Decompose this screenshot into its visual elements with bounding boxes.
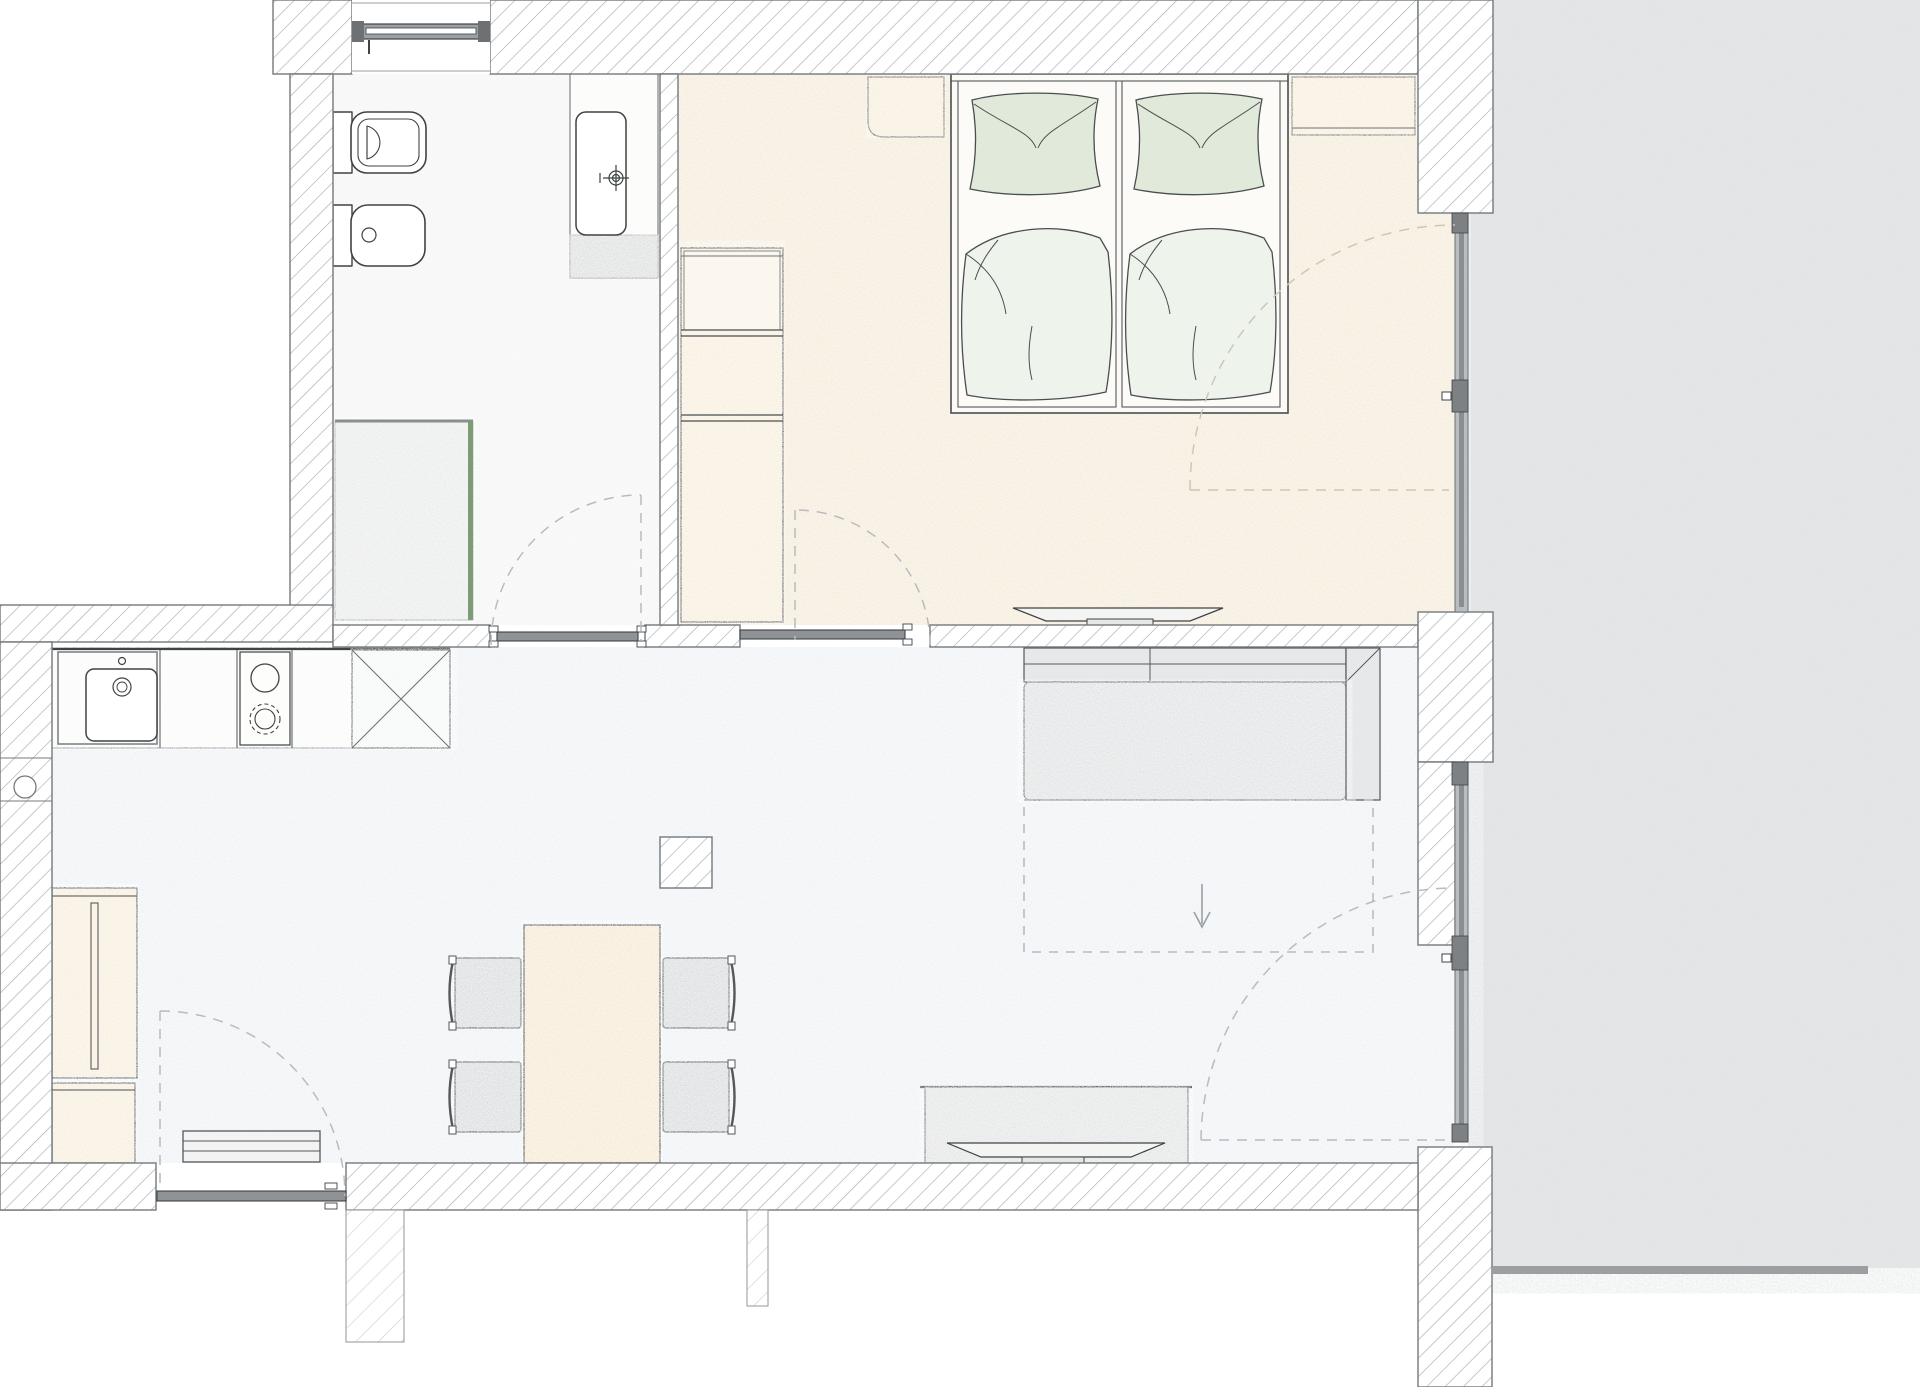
sink-faucet-icon <box>119 658 126 665</box>
wall-mid-a <box>333 625 490 647</box>
wall-bottom-b <box>346 1163 1418 1210</box>
wall-left <box>0 642 52 1210</box>
wall-right-strip <box>1418 762 1455 945</box>
sofa-seat <box>1024 682 1346 800</box>
fridge-handle <box>91 903 98 1069</box>
double-bed <box>951 74 1288 413</box>
kitchen-sink <box>86 658 157 742</box>
pillow-left <box>970 93 1100 195</box>
wall-column-circle <box>14 776 36 798</box>
wall-mid-c <box>930 625 1418 647</box>
wall-bathroom-right <box>660 74 678 625</box>
wall-stub-a <box>346 1210 404 1342</box>
sideboard <box>920 1087 1192 1163</box>
column <box>660 837 712 888</box>
chair <box>449 956 521 1030</box>
nightstand-right <box>1292 77 1415 135</box>
pillow-right <box>1134 93 1264 195</box>
radiator <box>183 1131 320 1162</box>
toilet <box>333 112 426 173</box>
wall-mid-b <box>645 625 740 647</box>
nightstand-left <box>868 77 944 137</box>
bidet <box>333 205 425 266</box>
wall-top-main <box>490 0 1418 74</box>
tall-fridge-unit <box>52 888 137 1078</box>
bathroom-window <box>352 0 490 74</box>
door-handle <box>1442 392 1451 400</box>
vanity-sink <box>570 73 658 278</box>
dining-table <box>524 925 660 1163</box>
walls-below <box>346 1210 768 1342</box>
wall-pier-bottom-right <box>1418 1147 1492 1387</box>
base-cabinet <box>52 1083 135 1163</box>
shower <box>335 421 473 620</box>
wall-left-band <box>0 605 333 642</box>
wall-bathroom-left <box>290 74 333 608</box>
cooktop <box>240 652 290 745</box>
wardrobe <box>681 248 783 622</box>
wall-bottom-a <box>0 1163 156 1210</box>
wall-top-left-block <box>273 0 352 74</box>
terrace-edge-line <box>1493 1266 1868 1274</box>
wall-pier-top-right <box>1418 0 1493 213</box>
sofa-back <box>1024 648 1346 682</box>
sofa <box>1024 648 1380 800</box>
floor-plan-canvas: Apartment floor plan — top view architec… <box>0 0 1920 1387</box>
wall-stub-b <box>747 1210 768 1306</box>
duvet-left <box>962 229 1112 400</box>
terrace-floor <box>1468 0 1920 1268</box>
door-handle <box>1442 954 1451 962</box>
wall-pier-mid-right <box>1418 612 1493 762</box>
chair <box>663 956 735 1030</box>
sofa-arm <box>1346 648 1380 800</box>
appliance-x-unit <box>352 650 450 748</box>
duvet-right <box>1126 229 1276 400</box>
shower-glass-panel <box>468 421 473 620</box>
